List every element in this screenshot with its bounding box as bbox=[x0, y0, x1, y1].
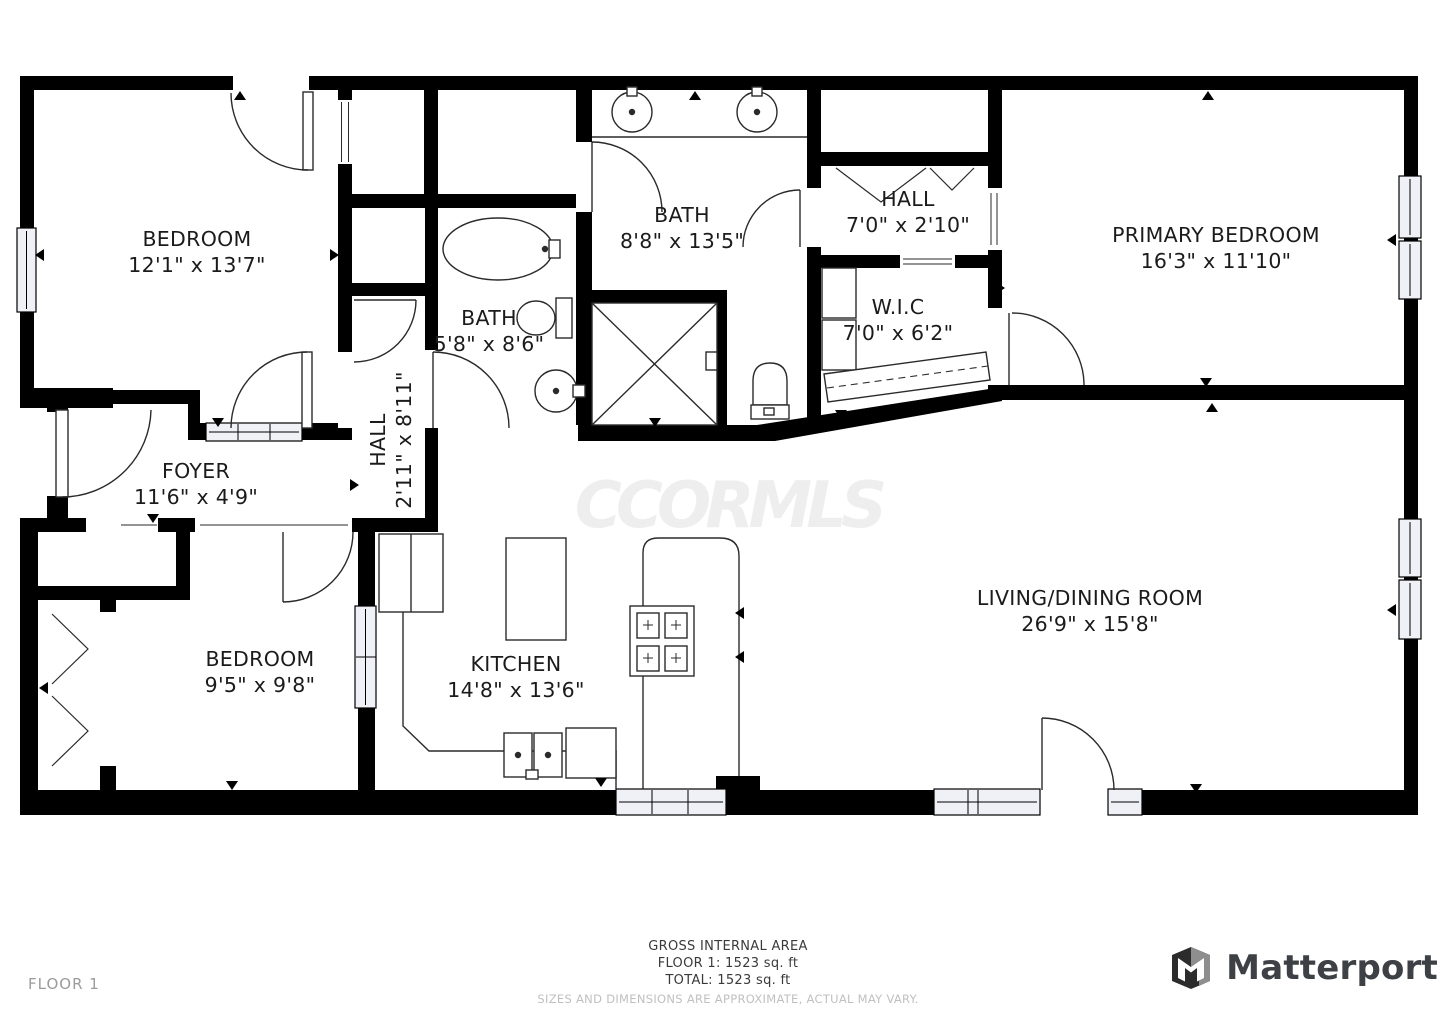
room-dims: 11'6" x 4'9" bbox=[134, 484, 258, 510]
bath1-door bbox=[433, 352, 509, 428]
room-name: LIVING/DINING ROOM bbox=[977, 585, 1203, 611]
room-name: BATH bbox=[620, 202, 744, 228]
stove bbox=[630, 606, 694, 676]
floorplan-page: BEDROOM 12'1" x 13'7" BATH 8'8" x 13'5" … bbox=[0, 0, 1448, 1024]
primary-door bbox=[1009, 313, 1084, 385]
window-bedroom1-bottom bbox=[206, 423, 302, 441]
room-dims: 12'1" x 13'7" bbox=[128, 252, 265, 278]
room-dims: 26'9" x 15'8" bbox=[977, 611, 1203, 637]
matterport-logo-icon bbox=[1168, 945, 1214, 991]
room-name: FOYER bbox=[134, 458, 258, 484]
window-bedroom2-right bbox=[355, 606, 376, 708]
room-name: BATH bbox=[434, 305, 545, 331]
toilet-bath2 bbox=[751, 363, 789, 419]
gross-internal-area-title: GROSS INTERNAL AREA bbox=[537, 938, 918, 955]
room-label-bath-2: BATH 8'8" x 13'5" bbox=[620, 202, 744, 254]
window-kitchen-bottom bbox=[616, 789, 726, 815]
room-name: BEDROOM bbox=[128, 226, 265, 252]
floor-number-label: FLOOR 1 bbox=[28, 975, 100, 993]
room-dims: 2'11" x 8'11" bbox=[391, 371, 417, 508]
area-summary: GROSS INTERNAL AREA FLOOR 1: 1523 sq. ft… bbox=[537, 938, 918, 1007]
room-name: BEDROOM bbox=[205, 646, 316, 672]
room-dims: 5'8" x 8'6" bbox=[434, 331, 545, 357]
bedroom2-door bbox=[283, 532, 353, 602]
sink-bath2-left bbox=[612, 87, 652, 132]
room-dims: 9'5" x 9'8" bbox=[205, 672, 316, 698]
room-name: W.I.C bbox=[843, 294, 954, 320]
room-name: HALL bbox=[365, 371, 391, 508]
total-area-value: TOTAL: 1523 sq. ft bbox=[537, 972, 918, 989]
mls-watermark: CCORMLS bbox=[575, 469, 881, 543]
window-primary-right-2 bbox=[1399, 241, 1421, 299]
window-living-right-1 bbox=[1399, 519, 1421, 577]
room-label-bath-1: BATH 5'8" x 8'6" bbox=[434, 305, 545, 357]
room-name: KITCHEN bbox=[447, 651, 584, 677]
window-living-right-2 bbox=[1399, 580, 1421, 639]
shower bbox=[592, 303, 717, 425]
bedroom2-closet-bifold-doors bbox=[52, 614, 88, 766]
sink-bath2-right bbox=[737, 87, 777, 132]
room-dims: 8'8" x 13'5" bbox=[620, 228, 744, 254]
room-label-bedroom-1: BEDROOM 12'1" x 13'7" bbox=[128, 226, 265, 278]
window-bedroom1-left bbox=[17, 228, 36, 312]
bathtub bbox=[443, 218, 560, 280]
room-label-bedroom-2: BEDROOM 9'5" x 9'8" bbox=[205, 646, 316, 698]
room-dims: 16'3" x 11'10" bbox=[1112, 248, 1320, 274]
room-label-hall-vertical: HALL 2'11" x 8'11" bbox=[365, 371, 417, 508]
brand-name: Matterport bbox=[1226, 948, 1438, 988]
walls bbox=[20, 76, 1418, 815]
kitchen-sink bbox=[504, 733, 562, 779]
room-label-hall-top: HALL 7'0" x 2'10" bbox=[846, 186, 970, 238]
kitchen-island bbox=[506, 538, 566, 640]
room-label-kitchen: KITCHEN 14'8" x 13'6" bbox=[447, 651, 584, 703]
window-living-bottom-2 bbox=[1108, 789, 1142, 815]
room-name: HALL bbox=[846, 186, 970, 212]
room-label-primary-bedroom: PRIMARY BEDROOM 16'3" x 11'10" bbox=[1112, 222, 1320, 274]
bedroom1-top-door bbox=[231, 92, 313, 170]
refrigerator bbox=[379, 534, 443, 612]
room-dims: 7'0" x 6'2" bbox=[843, 320, 954, 346]
room-label-wic: W.I.C 7'0" x 6'2" bbox=[843, 294, 954, 346]
hall-corridor-door bbox=[354, 300, 416, 362]
window-primary-right-1 bbox=[1399, 176, 1421, 238]
room-label-foyer: FOYER 11'6" x 4'9" bbox=[134, 458, 258, 510]
room-dims: 7'0" x 2'10" bbox=[846, 212, 970, 238]
bath2-hall-door bbox=[743, 190, 800, 247]
living-patio-door bbox=[1042, 718, 1114, 790]
matterport-brand: Matterport bbox=[1168, 945, 1438, 991]
dishwasher bbox=[566, 728, 616, 778]
room-dims: 14'8" x 13'6" bbox=[447, 677, 584, 703]
bedroom1-hall-door bbox=[231, 352, 312, 428]
room-label-living-dining: LIVING/DINING ROOM 26'9" x 15'8" bbox=[977, 585, 1203, 637]
dimensions-disclaimer: SIZES AND DIMENSIONS ARE APPROXIMATE, AC… bbox=[537, 991, 918, 1007]
window-living-bottom-1 bbox=[934, 789, 1040, 815]
floor-area-value: FLOOR 1: 1523 sq. ft bbox=[537, 955, 918, 972]
room-name: PRIMARY BEDROOM bbox=[1112, 222, 1320, 248]
